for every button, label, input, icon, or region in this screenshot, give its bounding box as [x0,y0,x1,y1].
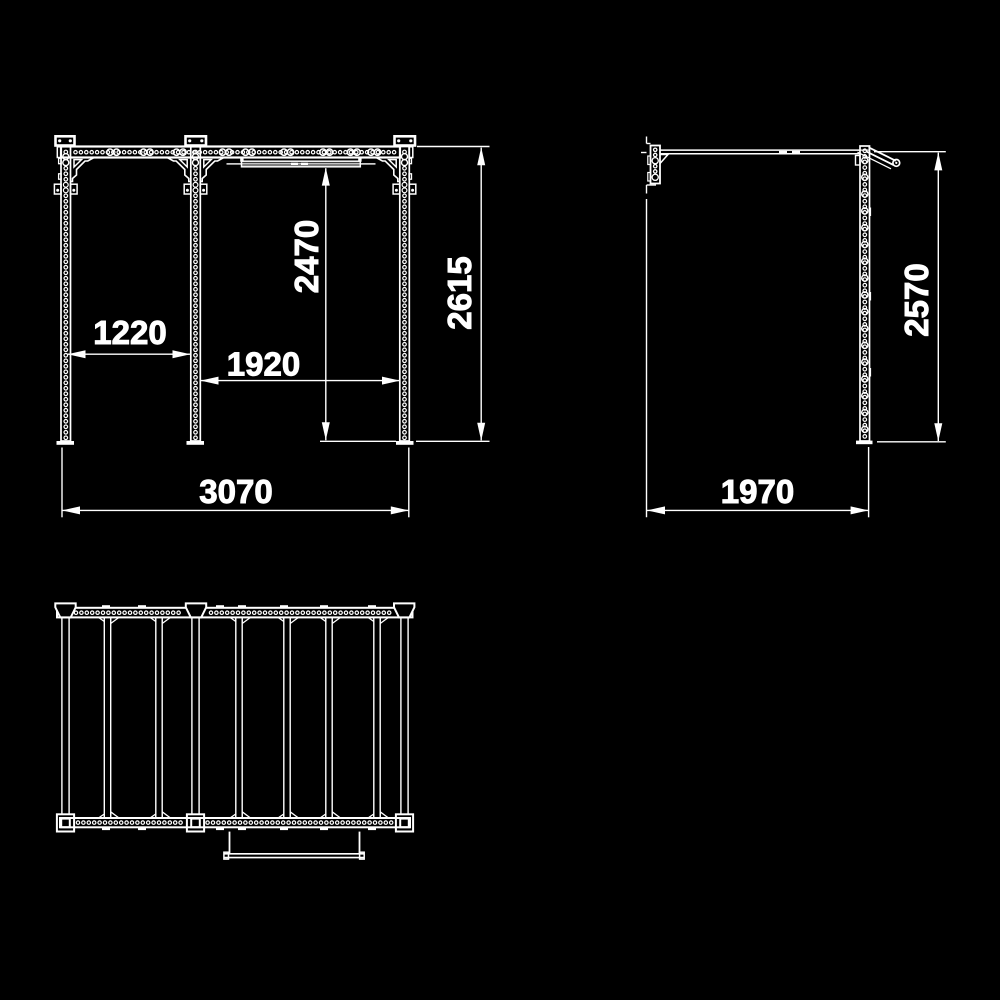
svg-text:1970: 1970 [721,473,794,510]
svg-text:1220: 1220 [93,314,166,351]
svg-text:2470: 2470 [288,220,325,293]
svg-text:2615: 2615 [441,256,478,329]
svg-text:2570: 2570 [898,263,935,336]
svg-text:3070: 3070 [199,473,272,510]
svg-text:1920: 1920 [227,345,300,382]
